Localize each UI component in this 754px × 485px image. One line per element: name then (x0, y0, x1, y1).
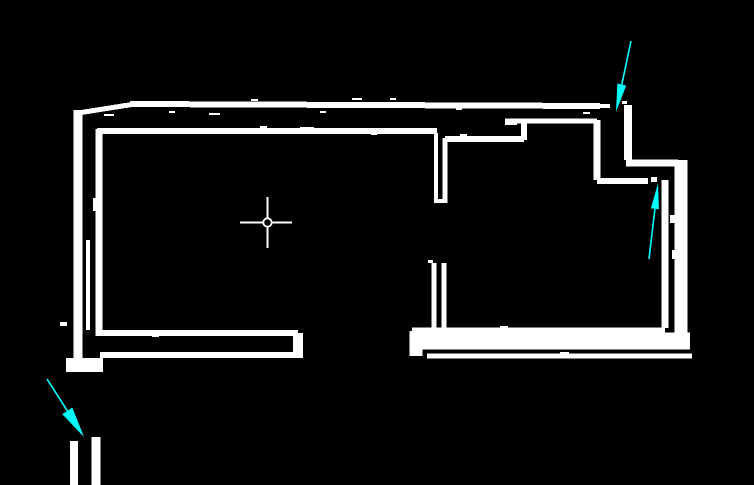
wall-speckle (670, 215, 676, 223)
arrow-line (47, 379, 67, 411)
wall-speckle (460, 134, 467, 136)
wall-speckle (560, 352, 569, 354)
wall-speckle (260, 126, 267, 128)
wall-segment (78, 104, 135, 113)
map-canvas[interactable] (0, 0, 754, 485)
wall-speckle (209, 113, 220, 115)
wall-speckle (622, 101, 627, 104)
map-viewer-screen (0, 0, 754, 485)
wall-speckle (300, 127, 314, 130)
wall-speckle (438, 199, 443, 203)
wall-speckle (500, 326, 508, 328)
wall-segment (130, 104, 600, 106)
crosshair-cursor (240, 197, 292, 248)
annotation-arrow-bottom-left (47, 379, 84, 437)
wall-speckle (93, 198, 97, 211)
arrow-head-icon (62, 408, 84, 437)
wall-speckle (600, 104, 610, 108)
arrow-head-icon (651, 183, 659, 209)
map-wall-speckles (60, 98, 678, 358)
annotation-arrows (47, 41, 659, 437)
wall-speckle (371, 133, 377, 135)
wall-speckle (505, 123, 517, 125)
wall-speckle (169, 111, 175, 113)
wall-speckle (86, 240, 90, 330)
crosshair-center-circle-icon (263, 218, 271, 226)
wall-speckle (60, 322, 67, 326)
arrow-line (622, 41, 631, 85)
wall-speckle (428, 260, 433, 263)
wall-speckle (672, 250, 678, 259)
wall-speckle (104, 114, 114, 116)
wall-speckle (320, 111, 326, 113)
map-walls (66, 104, 692, 485)
wall-speckle (390, 98, 396, 100)
annotation-arrow-right-middle (649, 183, 659, 259)
arrow-line (649, 209, 655, 259)
wall-speckle (352, 98, 362, 100)
wall-speckle (651, 177, 657, 182)
wall-speckle (220, 356, 228, 358)
wall-speckle (251, 99, 258, 101)
wall-speckle (456, 108, 462, 110)
wall-speckle (583, 112, 590, 114)
wall-speckle (152, 335, 159, 337)
